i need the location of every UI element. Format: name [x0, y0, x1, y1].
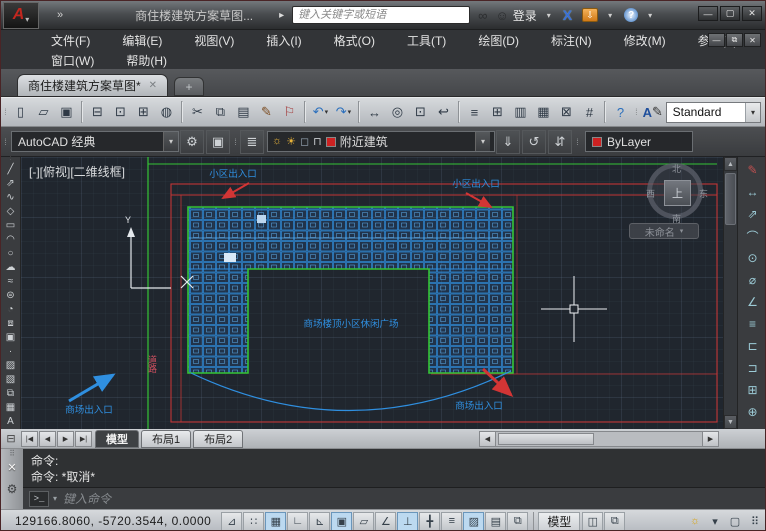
- arc-length-button[interactable]: ⌒: [740, 225, 766, 247]
- lineweight-toggle[interactable]: ≡: [441, 512, 462, 531]
- toolbar-button-: [604, 101, 606, 123]
- grid-display-toggle[interactable]: ▦: [265, 512, 286, 531]
- new-button[interactable]: ▯: [9, 100, 32, 124]
- command-input-row: >_ ▾: [23, 487, 765, 509]
- draw-toolbar: ⁚ ╱⇗∿◇▭◠○☁≈⊜◔⧈▣·▨▧⧉▦A: [1, 157, 21, 429]
- draw-toolbar-buttons: ╱⇗∿◇▭◠○☁≈⊜◔⧈▣·▨▧⧉▦A: [2, 162, 20, 428]
- vertical-scrollbar[interactable]: ▲ ▼: [723, 157, 737, 429]
- workspace-value: AutoCAD 经典: [18, 133, 95, 150]
- toolbar-grip[interactable]: ⁞: [1, 107, 9, 117]
- tool-palettes-button[interactable]: ▥: [509, 100, 532, 124]
- drawing-canvas[interactable]: [-][俯视][二维线框]: [21, 157, 723, 429]
- label-plaza: 商场楼顶小区休闲广场: [303, 318, 398, 330]
- command-history-line: 命令:: [31, 453, 765, 469]
- table-tool[interactable]: ▦: [2, 400, 20, 414]
- snap-mode-toggle[interactable]: ∷: [243, 512, 264, 531]
- toolbar-button-: [304, 101, 306, 123]
- viewcube-north[interactable]: 北: [672, 162, 681, 175]
- doc-minimize-button[interactable]: —: [708, 33, 725, 47]
- scroll-left-button[interactable]: ◀: [480, 432, 496, 446]
- viewcube-west[interactable]: 西: [646, 187, 655, 200]
- toolbar-button-: [458, 101, 460, 123]
- autocad-logo: A: [13, 6, 25, 24]
- crosshair-cursor: [541, 276, 607, 342]
- tolerance-button[interactable]: ⊞: [740, 379, 766, 401]
- make-block-tool[interactable]: ▣: [2, 330, 20, 344]
- scroll-right-button[interactable]: ▶: [702, 432, 718, 446]
- color-select[interactable]: ByLayer: [585, 131, 693, 152]
- menu-draw[interactable]: 绘图(D): [462, 30, 535, 50]
- statusbar-grip[interactable]: ⠿: [745, 512, 765, 531]
- polar-tracking-toggle[interactable]: ⊾: [309, 512, 330, 531]
- quick-access-overflow-icon[interactable]: »: [57, 9, 63, 21]
- search-binoculars-icon[interactable]: ∞: [478, 9, 487, 22]
- workspace-settings-button[interactable]: ⚙: [180, 130, 204, 154]
- drawing-tab-label: 商住楼建筑方案草图*: [28, 77, 141, 94]
- viewcube-top-face[interactable]: 上: [664, 180, 691, 206]
- main-area: ⁚ ╱⇗∿◇▭◠○☁≈⊜◔⧈▣·▨▧⧉▦A [-][俯视][二维线框]: [1, 157, 765, 429]
- help-button[interactable]: ?: [609, 100, 632, 124]
- building-footprint: [188, 207, 513, 373]
- color-value: ByLayer: [607, 135, 651, 149]
- tab-nav-last-button[interactable]: ▶|: [75, 431, 92, 447]
- quick-properties-toggle[interactable]: ▤: [485, 512, 506, 531]
- layer-freeze-icon[interactable]: ☀: [286, 135, 296, 148]
- layer-plot-icon[interactable]: ◻: [300, 135, 309, 148]
- status-toggles: ⊿∷▦∟⊾▣▱∠⊥╋≡▨▤⧉: [221, 512, 529, 531]
- designcenter-button[interactable]: ⊞: [486, 100, 509, 124]
- center-mark-button[interactable]: ⊕: [740, 401, 766, 423]
- layer-state-icons: ☼☀◻⊓: [272, 135, 322, 148]
- arrow-mall-exit-left: [69, 375, 113, 401]
- circle-tool[interactable]: ○: [2, 246, 20, 260]
- tab-model[interactable]: 模型: [95, 430, 139, 448]
- menubar: 文件(F)编辑(E)视图(V)插入(I)格式(O)工具(T)绘图(D)标注(N)…: [1, 29, 765, 69]
- toolbar-grip[interactable]: ⁞: [231, 137, 239, 147]
- tab-nav-prev-button[interactable]: ◀: [39, 431, 56, 447]
- layer-color-swatch: [326, 137, 336, 147]
- 3d-dwf-button[interactable]: ◍: [155, 100, 178, 124]
- paste-button[interactable]: ▤: [232, 100, 255, 124]
- scroll-down-button[interactable]: ▼: [724, 415, 737, 429]
- label-road: 道路: [147, 354, 157, 374]
- ucs-icon: [127, 227, 193, 288]
- exchange-apps-icon[interactable]: ⇩: [582, 8, 598, 22]
- titlebar: A▾ » 商住楼建筑方案草图... ▸ ∞ ☺ 登录 ▾ X ⇩ ▾ ? ▾ —…: [1, 1, 765, 29]
- baseline-button[interactable]: ⊏: [740, 335, 766, 357]
- layout-tab-row: ⊟ |◀ ◀ ▶ ▶| 模型 布局1 布局2 ◀ ▶: [1, 429, 765, 449]
- command-close-icon[interactable]: ✕: [7, 461, 16, 474]
- ellipse-tool[interactable]: ⊜: [2, 288, 20, 302]
- menu-edit[interactable]: 编辑(E): [106, 30, 178, 50]
- quick-view-drawings-button[interactable]: ⧉: [604, 512, 625, 531]
- dimension-toolbar: ✎↔⇗⌒⊙⌀∠≡⊏⊐⊞⊕: [737, 157, 766, 429]
- ortho-mode-toggle[interactable]: ∟: [287, 512, 308, 531]
- label-mall-exit-left: 商场出入口: [65, 404, 113, 416]
- object-snap-tracking-toggle[interactable]: ∠: [375, 512, 396, 531]
- open-button[interactable]: ▱: [32, 100, 55, 124]
- menu-window[interactable]: 窗口(W): [35, 50, 110, 70]
- chevron-down-icon[interactable]: ▾: [680, 227, 684, 235]
- menu-format[interactable]: 格式(O): [318, 30, 391, 50]
- toolbar-button-: [81, 101, 83, 123]
- chevron-down-icon[interactable]: ▾: [163, 132, 178, 151]
- chevron-down-icon[interactable]: ▾: [705, 512, 725, 531]
- dynamic-input-toggle[interactable]: ╋: [419, 512, 440, 531]
- toolbar-button-: [358, 101, 360, 123]
- quick-dimension-button[interactable]: ≡: [740, 313, 766, 335]
- horizontal-scrollbar[interactable]: ◀ ▶: [479, 431, 719, 447]
- text-style-value: Standard: [673, 105, 722, 119]
- arrow-entrance-top-left: [223, 183, 249, 198]
- publish-button[interactable]: ⊞: [132, 100, 155, 124]
- viewcube[interactable]: 北 南 西 东 上: [639, 161, 717, 223]
- chevron-down-icon[interactable]: ▾: [547, 11, 551, 20]
- chevron-down-icon: ▾: [348, 108, 352, 116]
- workspace-select[interactable]: AutoCAD 经典 ▾: [11, 131, 179, 152]
- doc-restore-button[interactable]: ⧉: [726, 33, 743, 47]
- tab-layout1[interactable]: 布局1: [141, 430, 191, 448]
- label-entrance-top-right: 小区出入口: [452, 178, 500, 190]
- transparency-toggle[interactable]: ▨: [463, 512, 484, 531]
- zoom-window-button[interactable]: ⊡: [409, 100, 432, 124]
- viewcube-east[interactable]: 东: [699, 187, 708, 200]
- doc-close-button[interactable]: ✕: [744, 33, 761, 47]
- spline-tool[interactable]: ≈: [2, 274, 20, 288]
- tab-close-icon[interactable]: ✕: [149, 80, 157, 91]
- layer-previous-button[interactable]: ⇵: [548, 130, 572, 154]
- ucs-y-label: Y: [125, 215, 131, 225]
- statusbar-right-icons: ☼▾▢⠿: [685, 512, 765, 531]
- insert-block-tool[interactable]: ⧈: [2, 316, 20, 330]
- restore-button[interactable]: ▢: [720, 6, 740, 21]
- plot-button[interactable]: ⊟: [86, 100, 109, 124]
- command-grip[interactable]: ⠿: [9, 450, 15, 457]
- region-tool[interactable]: ⧉: [2, 386, 20, 400]
- menu-insert[interactable]: 插入(I): [250, 30, 317, 50]
- drawing-content: 小区出入口 小区出入口 商场楼顶小区休闲广场 商场出入口 商场出入口 道路 Y: [21, 157, 723, 429]
- ellipse-arc-tool[interactable]: ◔: [2, 302, 20, 316]
- help-search-input[interactable]: [292, 6, 470, 24]
- scroll-up-button[interactable]: ▲: [724, 157, 737, 171]
- object-snap-toggle[interactable]: ▣: [331, 512, 352, 531]
- menu-row-1: 文件(F)编辑(E)视图(V)插入(I)格式(O)工具(T)绘图(D)标注(N)…: [1, 30, 765, 50]
- markup-set-manager-button[interactable]: ⊠: [555, 100, 578, 124]
- tab-nav-next-button[interactable]: ▶: [57, 431, 74, 447]
- command-history: 命令: 命令: *取消*: [23, 449, 765, 487]
- drawing-tab[interactable]: 商住楼建筑方案草图* ✕: [17, 74, 168, 96]
- menu-modify[interactable]: 修改(M): [608, 30, 682, 50]
- chevron-down-icon[interactable]: ▾: [475, 132, 490, 151]
- model-space-button[interactable]: 模型: [538, 512, 580, 531]
- zoom-previous-button[interactable]: ↩: [432, 100, 455, 124]
- menu-row-2: 窗口(W)帮助(H): [1, 50, 765, 70]
- arc-tool[interactable]: ◠: [2, 232, 20, 246]
- aligned-dimension-button[interactable]: ⇗: [740, 203, 766, 225]
- 3d-object-snap-toggle[interactable]: ▱: [353, 512, 374, 531]
- text-style-select[interactable]: Standard ▾: [666, 102, 761, 123]
- standard-toolbar-buttons: ▯▱▣⊟⊡⊞◍✂⧉▤✎⚐↶▾↷▾↔◎⊡↩≡⊞▥▦⊠#?: [9, 100, 632, 124]
- angular-button[interactable]: ∠: [740, 291, 766, 313]
- dimension-toolbar-buttons: ✎↔⇗⌒⊙⌀∠≡⊏⊐⊞⊕: [740, 159, 766, 423]
- toolbar-grip[interactable]: ⁞: [632, 107, 640, 117]
- redo-button[interactable]: ↷▾: [332, 100, 355, 124]
- chevron-down-icon: ▾: [25, 15, 29, 24]
- command-prompt-icon: >_: [29, 491, 49, 507]
- tab-layout2[interactable]: 布局2: [193, 430, 243, 448]
- save-button[interactable]: ▣: [55, 100, 78, 124]
- chevron-down-icon[interactable]: ▾: [745, 103, 760, 122]
- annotation-monitor-icon[interactable]: ⊟: [1, 432, 21, 445]
- app-menu-button[interactable]: A▾: [3, 2, 39, 29]
- layer-on-icon[interactable]: ☼: [272, 135, 282, 148]
- tab-nav-first-button[interactable]: |◀: [21, 431, 38, 447]
- new-drawing-tab-button[interactable]: +: [174, 77, 204, 96]
- selection-cycling-toggle[interactable]: ⧉: [507, 512, 528, 531]
- make-object-layer-current-button[interactable]: ⇓: [496, 130, 520, 154]
- copy-button[interactable]: ⧉: [209, 100, 232, 124]
- layer-lock-icon[interactable]: ⊓: [313, 135, 322, 148]
- quickview-buttons: ◫⧉: [582, 512, 626, 531]
- command-window: ⠿ ✕ ⚙ 命令: 命令: *取消* >_ ▾: [1, 449, 765, 509]
- match-properties-button[interactable]: ✎: [255, 100, 278, 124]
- toolbar-grip[interactable]: ⁞: [1, 137, 9, 147]
- menu-dimension[interactable]: 标注(N): [535, 30, 608, 50]
- chevron-down-icon[interactable]: ▾: [608, 11, 612, 20]
- search-flyout-icon[interactable]: ▸: [279, 10, 284, 21]
- autocad-window: A▾ » 商住楼建筑方案草图... ▸ ∞ ☺ 登录 ▾ X ⇩ ▾ ? ▾ —…: [0, 0, 766, 531]
- markup-button[interactable]: ⚐: [278, 100, 301, 124]
- multileader-button[interactable]: ✎: [740, 159, 766, 181]
- vertical-scroll-thumb[interactable]: [725, 173, 736, 225]
- coordinates-readout[interactable]: 129166.8060, -5720.3544, 0.0000: [1, 514, 221, 528]
- chevron-down-icon[interactable]: ▾: [53, 494, 57, 503]
- sign-in-link[interactable]: 登录: [513, 7, 537, 24]
- annotation-visibility-button[interactable]: ☼: [685, 512, 705, 531]
- toolbar-button-: [181, 101, 183, 123]
- gradient-tool[interactable]: ▧: [2, 372, 20, 386]
- rectangle-tool[interactable]: ▭: [2, 218, 20, 232]
- properties-button[interactable]: ≡: [463, 100, 486, 124]
- horizontal-scroll-thumb[interactable]: [498, 433, 594, 445]
- continue-button[interactable]: ⊐: [740, 357, 766, 379]
- quickcalc-button[interactable]: #: [578, 100, 601, 124]
- toolbar-grip[interactable]: ⁞: [573, 137, 581, 147]
- layer-properties-button[interactable]: ≣: [240, 130, 264, 154]
- menu-view[interactable]: 视图(V): [178, 30, 250, 50]
- command-customize-icon[interactable]: ⚙: [7, 482, 18, 496]
- building-detail: [257, 215, 266, 223]
- command-input[interactable]: [61, 491, 765, 507]
- diameter-button[interactable]: ⌀: [740, 269, 766, 291]
- layer-match-button[interactable]: ↺: [522, 130, 546, 154]
- help-icon[interactable]: ?: [624, 8, 638, 22]
- named-view-pill[interactable]: 未命名 ▾: [629, 223, 699, 239]
- layer-select[interactable]: ☼☀◻⊓ 附近建筑 ▾: [267, 131, 495, 152]
- polygon-tool[interactable]: ◇: [2, 204, 20, 218]
- polyline-tool[interactable]: ∿: [2, 190, 20, 204]
- command-history-line: 命令: *取消*: [31, 469, 765, 485]
- named-view-label: 未命名: [645, 224, 675, 239]
- user-icon[interactable]: ☺: [495, 9, 508, 22]
- label-entrance-top-left: 小区出入口: [209, 168, 257, 180]
- menu-help[interactable]: 帮助(H): [110, 50, 183, 70]
- autodesk-360-icon[interactable]: X: [563, 7, 572, 23]
- standard-toolbar: ⁞ ▯▱▣⊟⊡⊞◍✂⧉▤✎⚐↶▾↷▾↔◎⊡↩≡⊞▥▦⊠#? ⁞ A✎ Stand…: [1, 97, 765, 127]
- radius-button[interactable]: ⊙: [740, 247, 766, 269]
- quick-view-layouts-button[interactable]: ◫: [582, 512, 603, 531]
- infer-constraints-toggle[interactable]: ⊿: [221, 512, 242, 531]
- zoom-realtime-button[interactable]: ◎: [386, 100, 409, 124]
- construction-line-tool[interactable]: ⇗: [2, 176, 20, 190]
- viewport-controls[interactable]: [-][俯视][二维线框]: [29, 163, 125, 180]
- mtext-tool[interactable]: A: [2, 414, 20, 428]
- line-tool[interactable]: ╱: [2, 162, 20, 176]
- point-tool[interactable]: ·: [2, 344, 20, 358]
- linear-dimension-button[interactable]: ↔: [740, 181, 766, 203]
- revision-cloud-tool[interactable]: ☁: [2, 260, 20, 274]
- sheet-set-manager-button[interactable]: ▦: [532, 100, 555, 124]
- chevron-down-icon[interactable]: ▾: [648, 11, 652, 20]
- color-swatch: [592, 137, 602, 147]
- label-mall-exit-right: 商场出入口: [455, 400, 503, 412]
- hatch-tool[interactable]: ▨: [2, 358, 20, 372]
- workspace-save-button[interactable]: ▣: [206, 130, 230, 154]
- window-title: 商住楼建筑方案草图...: [135, 7, 253, 24]
- plot-preview-button[interactable]: ⊡: [109, 100, 132, 124]
- text-style-icon[interactable]: A✎: [640, 100, 666, 124]
- undo-button[interactable]: ↶▾: [309, 100, 332, 124]
- close-button[interactable]: ✕: [742, 6, 762, 21]
- command-window-strip: ⠿ ✕ ⚙: [1, 449, 23, 509]
- layers-toolbar: ⁞ AutoCAD 经典 ▾ ⚙ ▣ ⁞ ≣ ☼☀◻⊓ 附近建筑 ▾ ⇓ ↺ ⇵…: [1, 127, 765, 157]
- minimize-button[interactable]: —: [698, 6, 718, 21]
- dynamic-ucs-toggle[interactable]: ⊥: [397, 512, 418, 531]
- pan-button[interactable]: ↔: [363, 100, 386, 124]
- clean-screen-button[interactable]: ▢: [725, 512, 745, 531]
- menu-tools[interactable]: 工具(T): [391, 30, 462, 50]
- cut-button[interactable]: ✂: [186, 100, 209, 124]
- chevron-down-icon: ▾: [325, 108, 329, 116]
- building-detail: [224, 253, 236, 262]
- menu-file[interactable]: 文件(F): [35, 30, 106, 50]
- current-layer-name: 附近建筑: [340, 133, 471, 150]
- drawing-tabbar: 商住楼建筑方案草图* ✕ +: [1, 69, 765, 97]
- statusbar: 129166.8060, -5720.3544, 0.0000 ⊿∷▦∟⊾▣▱∠…: [1, 509, 765, 531]
